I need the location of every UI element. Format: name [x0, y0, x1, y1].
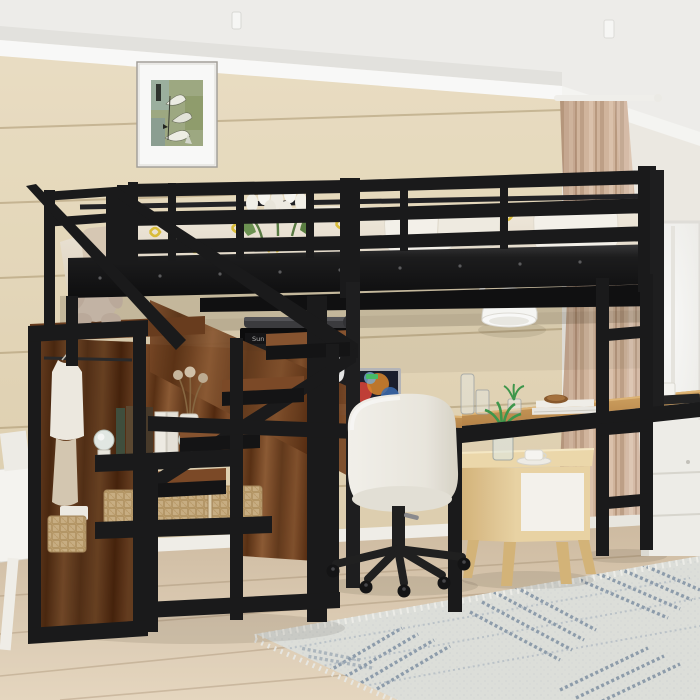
photo-vignette — [0, 0, 700, 700]
product-photo-scene: 10 30 Sun Dec 20 — [0, 0, 700, 700]
scene-canvas: 10 30 Sun Dec 20 — [0, 0, 700, 700]
